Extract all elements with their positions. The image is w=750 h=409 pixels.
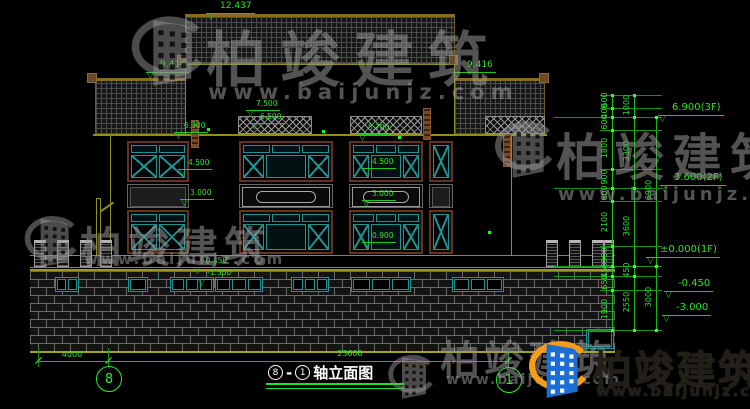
watermark-logo — [492, 114, 554, 188]
railing-post — [569, 240, 581, 267]
level-marker-1f: ±0.000(1F) — [646, 245, 720, 258]
witness-line — [600, 108, 662, 109]
dim-value: 2100 — [601, 205, 609, 239]
elevation-marker-2f-sill-left: 4.500 — [178, 159, 212, 170]
elevation-marker-2f-sill: 4.500 — [362, 158, 396, 169]
basement-window — [128, 277, 148, 292]
railing-post — [546, 240, 558, 267]
basement-window — [291, 277, 329, 292]
title-separator: - — [286, 364, 292, 382]
level-marker-minus300: -3.000 — [662, 303, 711, 316]
snap-dot — [322, 130, 325, 133]
watermark-logo — [22, 212, 78, 274]
window-2f — [239, 141, 333, 182]
watermark-brand: 柏竣建筑 — [556, 118, 750, 190]
spandrel-panel — [429, 184, 453, 208]
brand-logo-colored — [526, 336, 588, 406]
basement-window — [452, 277, 504, 292]
eave-end-block-left — [87, 73, 97, 83]
title-axis-right: 1 — [295, 365, 310, 380]
watermark-url: www.baijunjz.com — [208, 80, 519, 104]
roof-tier2-eave-line — [93, 134, 547, 136]
witness-line — [600, 95, 662, 96]
dim-left-segment: 4000 — [50, 351, 94, 359]
drawing-title: 8 - 1 轴立面图 — [268, 362, 373, 383]
dim-value: 2550 — [623, 285, 631, 319]
watermark-url: www.baijunjz.com — [558, 184, 750, 205]
title-label: 轴立面图 — [313, 362, 373, 383]
watermark-url: www.baijunjz.com — [84, 250, 285, 268]
snap-dot — [398, 136, 401, 139]
title-underline — [266, 383, 404, 385]
dim-value: 450 — [623, 253, 631, 287]
dim-value: 3000 — [645, 280, 653, 314]
watermark-logo — [386, 350, 434, 406]
elevation-marker-left-head: 6.300 — [174, 122, 208, 133]
dim-value: 3600 — [623, 209, 631, 243]
axis-bubble-8: 8 — [96, 366, 122, 392]
gutter-bracket — [100, 202, 114, 213]
elevation-marker-2f-head: 5.700 — [358, 124, 392, 135]
snap-dot — [488, 231, 491, 234]
brand-url: www.baijunjz.com — [596, 382, 750, 400]
basement-window — [55, 277, 79, 292]
window-2f — [429, 141, 453, 182]
spandrel-panel-ornate — [239, 184, 333, 208]
elevation-marker-band: 6.500 — [250, 113, 284, 124]
cad-canvas: 12.437 9.416 9.416 7.500 6.500 6.300 5.7… — [0, 0, 750, 409]
title-axis-left: 8 — [268, 365, 283, 380]
dim-total: 23600 — [322, 350, 378, 358]
elevation-marker-1f-head-left: 3.000 — [180, 189, 214, 200]
downspout — [423, 108, 431, 140]
dim-value: 1000 — [623, 88, 631, 122]
level-marker-minus045: -0.450 — [664, 279, 713, 292]
basement-window — [351, 277, 411, 292]
elevation-marker-1f-sill: 0.900 — [362, 232, 396, 243]
level-marker-3f: 6.900(3F) — [658, 103, 724, 116]
elevation-marker-1f-head: 3.000 — [362, 190, 396, 201]
eave-end-block-right — [539, 73, 549, 83]
watermark-logo — [128, 8, 204, 98]
window-1f — [429, 210, 453, 254]
dim-value: 1900 — [601, 292, 609, 326]
snap-dot — [207, 128, 210, 131]
